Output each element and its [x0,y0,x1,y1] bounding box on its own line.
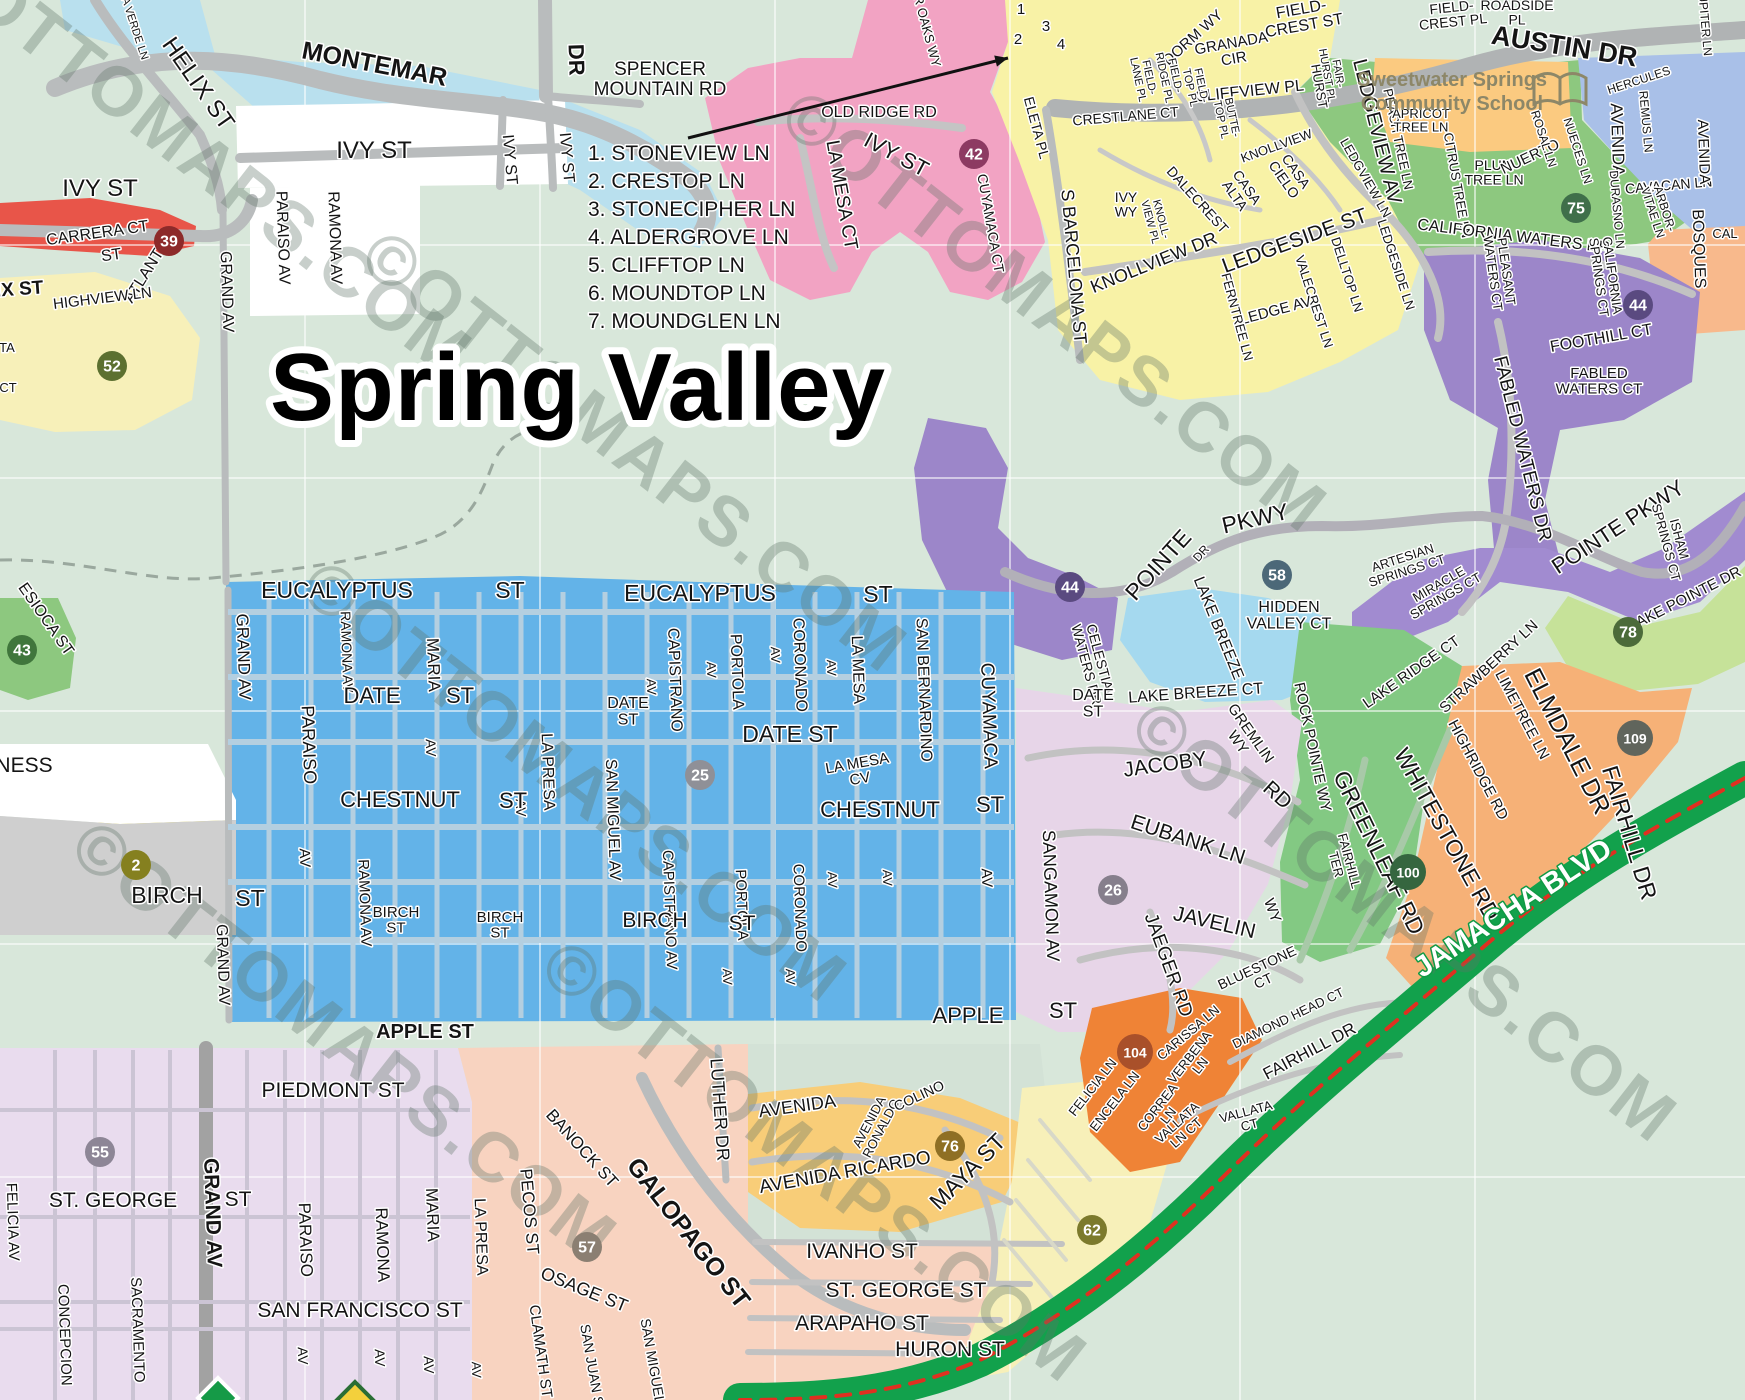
street-label: DATE [343,683,400,708]
street-label: RAMONA [372,1207,394,1283]
street-label: RAMONA AV [338,611,357,694]
badge-number: 58 [1268,568,1286,585]
street-label: ST. GEORGE [49,1189,177,1212]
street-label: PIEDMONT ST [261,1079,404,1102]
street-label: ST [729,912,756,935]
school-name: Sweetwater Springs [1357,69,1547,91]
street-label: RAMONA AV [324,191,344,285]
map-title: Spring Valley [270,334,886,441]
street-label: PARAISO [295,1202,317,1277]
legend-item: 5. CLIFFTOP LN [588,254,745,277]
street-label: IVYWY [1115,189,1138,220]
street-label: DR [563,43,589,76]
school-name: Community School [1361,93,1543,115]
street-label: PARAISO [298,705,321,784]
street-label: ST. GEORGE ST [825,1279,986,1302]
street-label: AVENIDA [1607,103,1629,178]
street-label: IVY ST [62,175,138,202]
street-label: FIELD-CREST PL [1417,0,1488,33]
street-label: AV [825,871,841,888]
badge-number: 55 [91,1145,109,1162]
callout-number: 4 [1057,36,1065,53]
badge-number: 75 [1567,201,1585,218]
street-label: SPENCERMOUNTAIN RD [594,59,727,100]
street-label: CT [0,380,17,395]
street-label: IVANHO ST [806,1240,918,1263]
street-label: ST [499,788,527,813]
street-label: CUYAMACA [976,662,1001,769]
street-label: LA PRESA [538,733,558,811]
legend-item: 2. CRESTOP LN [588,170,745,193]
street-label: AV [469,1361,485,1378]
legend-item: 3. STONECIPHER LN [588,198,795,221]
map-title-text: Spring Valley [270,334,886,441]
street-label: AV [783,968,799,985]
street-label: EUCALYPTUS [261,577,413,603]
map-canvas: ©OTTOMAPS.COM©OTTOMAPS.COM©OTTOMAPS.COM©… [0,0,1745,1400]
badge-number: 25 [691,768,709,785]
street-label: AV [720,968,736,985]
street-label: WY [1260,896,1284,925]
street-label: AV [880,869,896,886]
street-label: GRAND AV [199,1158,226,1268]
legend-item: 7. MOUNDGLEN LN [588,310,781,333]
street-label: HURON ST [895,1338,1005,1361]
street-label: APPLE ST [376,1021,474,1043]
street-label: CAL [1712,226,1737,241]
street-label: HIDDENVALLEY CT [1247,599,1332,633]
badge-number: 52 [103,359,121,376]
street-label: AV [978,868,996,887]
road-dr-road [545,0,546,96]
street-label: AV [768,646,784,663]
callout-number: 1 [1017,1,1025,18]
badge-number: 39 [160,234,178,251]
street-label: ST [225,1188,252,1211]
street-label: FELICIA AV [3,1183,23,1262]
spring-valley-map: ©OTTOMAPS.COM©OTTOMAPS.COM©OTTOMAPS.COM©… [0,0,1745,1400]
badge-number: 100 [1396,865,1420,881]
street-label: IVY ST [336,137,412,164]
street-label: CHESTNUT [820,797,940,822]
street-label: DATE ST [742,721,837,747]
street-label: GRAND AV [217,251,237,333]
street-label: SAN FRANCISCO ST [257,1299,463,1322]
street-label: MARIA [422,1188,443,1243]
street-label: ST [863,581,892,607]
badge-number: 44 [1629,298,1647,315]
street-label: LAKE BREEZE CT [1128,680,1264,706]
street-label: AV [421,1356,438,1375]
badge-number: 62 [1083,1223,1101,1240]
badge-number: 43 [13,643,31,660]
street-label: GRAND AV [213,924,233,1006]
street-label: ST [100,246,123,266]
street-label: ST [446,683,474,708]
street-label: ROADSIDEPL [1480,0,1553,28]
street-label: AV [644,678,660,695]
street-label: AV [824,659,840,676]
street-label: AV [704,661,720,678]
badge-number: 104 [1123,1045,1147,1061]
street-label: ST [1049,998,1077,1023]
badge-number: 76 [941,1139,959,1156]
badge-number: 57 [578,1240,596,1257]
street-label: CONCEPCION [54,1284,75,1386]
street-label: BIRCH [131,882,203,908]
street-label: BIRCH [622,909,687,932]
street-label: ST [235,885,264,911]
badge-number: 109 [1623,731,1647,747]
street-label: EUCALYPTUS [624,580,776,606]
street-label: TA [0,340,15,355]
legend-item: 4. ALDERGROVE LN [588,226,789,249]
badge-number: 78 [1619,625,1637,642]
street-label: ST [976,792,1004,817]
street-label: LA PRESA [471,1198,491,1276]
badge-number: 44 [1061,580,1079,597]
legend-item: 1. STONEVIEW LN [588,142,770,165]
street-label: AV [423,739,440,758]
street-label: AV [372,1349,389,1368]
callout-number: 3 [1042,18,1050,35]
street-label: ARAPAHO ST [795,1312,929,1335]
street-label: CHESTNUT [340,787,460,812]
street-label: LA MESA [848,635,867,704]
street-label: AV [296,848,314,867]
street-label: AVENIDA [1694,119,1713,184]
street-label: BOSQUES [1689,209,1709,289]
street-label: APPLE [933,1003,1004,1028]
street-label: GRAND AV [232,613,254,701]
street-label: CORONADO [789,617,809,712]
callout-number: 2 [1014,31,1022,48]
street-label: AV [295,1347,312,1366]
street-label: MARIA [423,638,444,693]
street-label: CAPISTRANO [664,628,685,733]
badge-number: 2 [132,858,141,875]
street-label: CORONADO [789,863,809,952]
badge-number: 26 [1104,883,1122,900]
street-label: ST [495,577,524,603]
street-label: PORTOLA [727,634,747,711]
street-label: IX ST [0,277,44,301]
street-label: OLD RIDGE RD [821,104,937,121]
street-label: NESS [0,754,53,777]
street-label: PARAISO AV [272,191,292,286]
badge-number: 42 [965,147,983,164]
street-label: RAMONA AV [354,859,374,947]
legend-item: 6. MOUNDTOP LN [588,282,766,305]
